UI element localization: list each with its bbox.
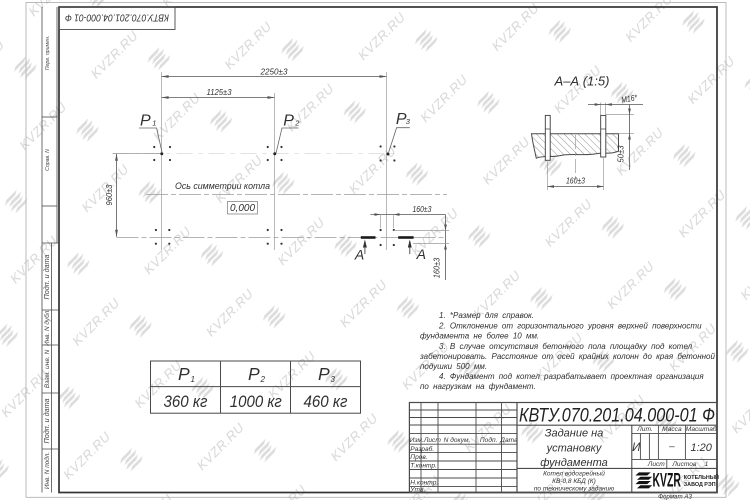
svg-text:P: P [178, 364, 190, 384]
svg-text:2250±3: 2250±3 [260, 67, 288, 77]
svg-text:Разраб.: Разраб. [410, 445, 434, 453]
svg-text:1: 1 [152, 118, 156, 127]
svg-text:Справ. N: Справ. N [45, 149, 51, 171]
svg-text:А: А [354, 247, 364, 263]
svg-text:1: 1 [191, 375, 195, 384]
svg-text:КВТУ.070.201.04.000-01 Ф: КВТУ.070.201.04.000-01 Ф [65, 12, 169, 23]
svg-text:2: 2 [260, 375, 266, 384]
svg-text:Подп.: Подп. [480, 436, 498, 444]
svg-text:Утв.: Утв. [409, 486, 425, 493]
svg-text:ЗАВОД РЭП: ЗАВОД РЭП [684, 482, 716, 488]
svg-text:забетонировать. Расстояние от: забетонировать. Расстояние от осей крайн… [419, 352, 715, 361]
svg-text:460 кг: 460 кг [304, 392, 348, 411]
svg-text:160±3: 160±3 [566, 175, 585, 185]
svg-text:160±3: 160±3 [432, 258, 442, 279]
svg-text:50±3: 50±3 [616, 145, 626, 162]
svg-text:Масштаб: Масштаб [686, 425, 717, 433]
svg-text:Ось симметрии котла: Ось симметрии котла [175, 181, 270, 191]
svg-text:Подп. и дата: Подп. и дата [42, 255, 51, 300]
svg-text:КВТУ.070.201.04.000-01 Ф: КВТУ.070.201.04.000-01 Ф [519, 406, 715, 427]
svg-text:3: 3 [331, 375, 336, 384]
svg-text:160±3: 160±3 [413, 204, 432, 214]
svg-text:P: P [283, 112, 294, 129]
svg-text:3. В случае отсутствия бетонно: 3. В случае отсутствия бетонного пола пл… [439, 342, 693, 351]
svg-text:Инв. N дубл.: Инв. N дубл. [43, 309, 51, 346]
svg-text:1000 кг: 1000 кг [230, 392, 282, 411]
svg-text:Формат А3: Формат А3 [658, 494, 692, 500]
svg-text:P: P [140, 112, 151, 129]
svg-text:Инв. N подл.: Инв. N подл. [43, 452, 51, 489]
svg-text:Подп. и дата: Подп. и дата [42, 399, 51, 444]
svg-text:Задание на: Задание на [545, 428, 604, 440]
svg-text:Дата: Дата [499, 437, 518, 444]
svg-text:0,000: 0,000 [230, 203, 255, 214]
svg-text:КВ-0,8 КБД (К): КВ-0,8 КБД (К) [552, 478, 596, 485]
svg-text:1:20: 1:20 [690, 442, 712, 454]
svg-text:А–А (1:5): А–А (1:5) [554, 74, 610, 89]
svg-text:1: 1 [705, 461, 709, 468]
svg-text:KVZR: KVZR [653, 471, 682, 492]
svg-text:2. Отклонение от горизонтально: 2. Отклонение от горизонтального уровня … [438, 322, 702, 331]
svg-text:Пров.: Пров. [410, 454, 428, 461]
svg-text:360 кг: 360 кг [164, 392, 208, 411]
svg-text:Взам. инв. N: Взам. инв. N [44, 350, 51, 389]
svg-text:N докум.: N докум. [444, 436, 471, 444]
svg-text:КОТЕЛЬНЫЙ: КОТЕЛЬНЫЙ [684, 473, 719, 481]
svg-text:подушки 500 мм.: подушки 500 мм. [420, 362, 487, 371]
svg-text:фундамента не более 10 мм.: фундамента не более 10 мм. [420, 332, 539, 341]
svg-text:P: P [318, 364, 330, 384]
svg-text:Изм.Лист: Изм.Лист [410, 437, 442, 444]
svg-text:4. Фундамент под котел разраба: 4. Фундамент под котел разрабатывает про… [439, 372, 704, 381]
svg-text:–: – [668, 442, 675, 453]
svg-text:Масса: Масса [662, 426, 682, 433]
svg-text:Перв. примен.: Перв. примен. [45, 36, 51, 70]
svg-text:Т.контр.: Т.контр. [410, 463, 437, 470]
svg-text:Лит.: Лит. [636, 426, 653, 433]
svg-text:Котел водогрейный: Котел водогрейный [543, 470, 605, 478]
svg-text:Лист: Лист [647, 461, 665, 468]
svg-text:Листов: Листов [671, 461, 697, 468]
svg-text:установку: установку [546, 443, 603, 455]
svg-text:А: А [416, 246, 426, 262]
svg-text:2: 2 [294, 118, 300, 127]
svg-text:фундамента: фундамента [540, 457, 608, 469]
svg-text:по нагрузкам на фундамент.: по нагрузкам на фундамент. [420, 382, 536, 391]
svg-text:1125±3: 1125±3 [207, 87, 232, 97]
svg-text:1. *Размер для справок.: 1. *Размер для справок. [439, 311, 534, 320]
svg-text:P: P [248, 364, 260, 384]
svg-text:по техническому заданию: по техническому заданию [534, 485, 614, 493]
svg-text:И: И [632, 442, 641, 454]
svg-text:960±3: 960±3 [104, 184, 114, 205]
